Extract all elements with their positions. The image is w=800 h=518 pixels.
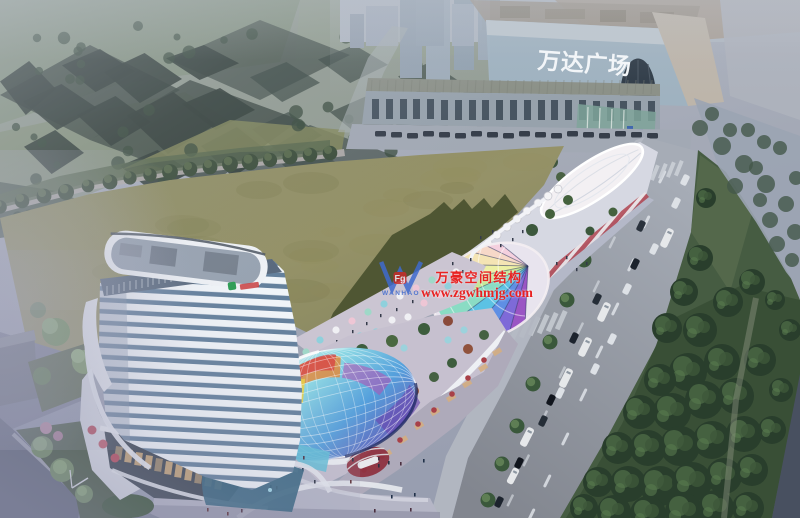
svg-text:万豪空间结构: 万豪空间结构 <box>434 270 522 285</box>
svg-text:www.zgwhmjg.com: www.zgwhmjg.com <box>421 285 533 300</box>
svg-text:Fg: Fg <box>395 274 406 284</box>
svg-text:WANHAO: WANHAO <box>382 290 420 297</box>
